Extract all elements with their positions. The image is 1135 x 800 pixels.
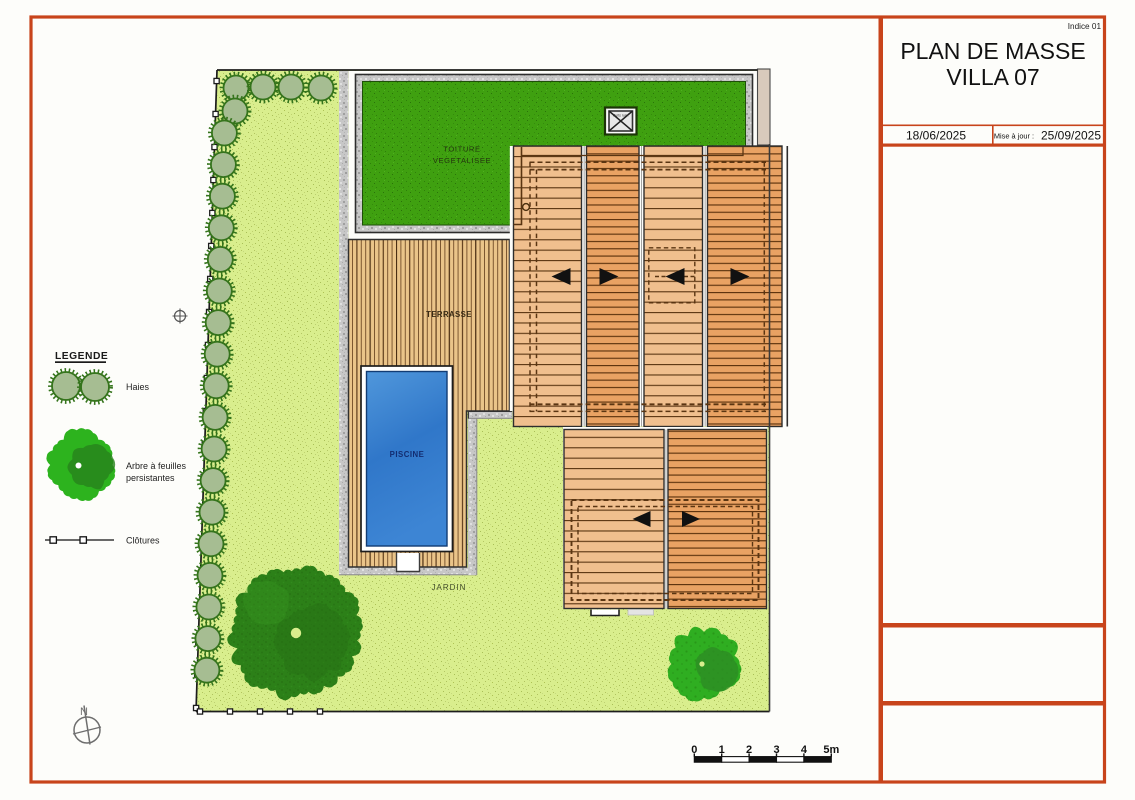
svg-text:2: 2	[746, 744, 752, 756]
svg-text:4: 4	[801, 744, 808, 756]
svg-text:N: N	[80, 706, 88, 718]
svg-text:Haies: Haies	[126, 382, 150, 392]
svg-text:18/06/2025: 18/06/2025	[906, 129, 966, 143]
svg-text:0: 0	[691, 744, 697, 756]
svg-text:Mise à jour :: Mise à jour :	[994, 132, 1034, 141]
svg-text:TERRASSE: TERRASSE	[426, 310, 472, 319]
svg-text:1: 1	[719, 744, 725, 756]
svg-text:TOITURE: TOITURE	[443, 145, 480, 154]
svg-text:25/09/2025: 25/09/2025	[1041, 129, 1101, 143]
svg-text:VEGETALISEE: VEGETALISEE	[433, 156, 491, 165]
svg-text:5m: 5m	[823, 744, 839, 756]
svg-text:JARDIN: JARDIN	[432, 583, 467, 592]
svg-text:LEGENDE: LEGENDE	[55, 351, 108, 362]
svg-text:persistantes: persistantes	[126, 473, 175, 483]
svg-text:3: 3	[773, 744, 779, 756]
svg-text:Indice 01: Indice 01	[1068, 22, 1102, 31]
svg-text:Clôtures: Clôtures	[126, 536, 160, 546]
svg-text:PISCINE: PISCINE	[390, 450, 425, 459]
svg-text:Arbre à feuilles: Arbre à feuilles	[126, 461, 187, 471]
svg-text:VILLA 07: VILLA 07	[946, 64, 1039, 90]
svg-text:PLAN DE MASSE: PLAN DE MASSE	[900, 38, 1085, 64]
svg-text:Puits lum.: Puits lum.	[613, 114, 629, 118]
